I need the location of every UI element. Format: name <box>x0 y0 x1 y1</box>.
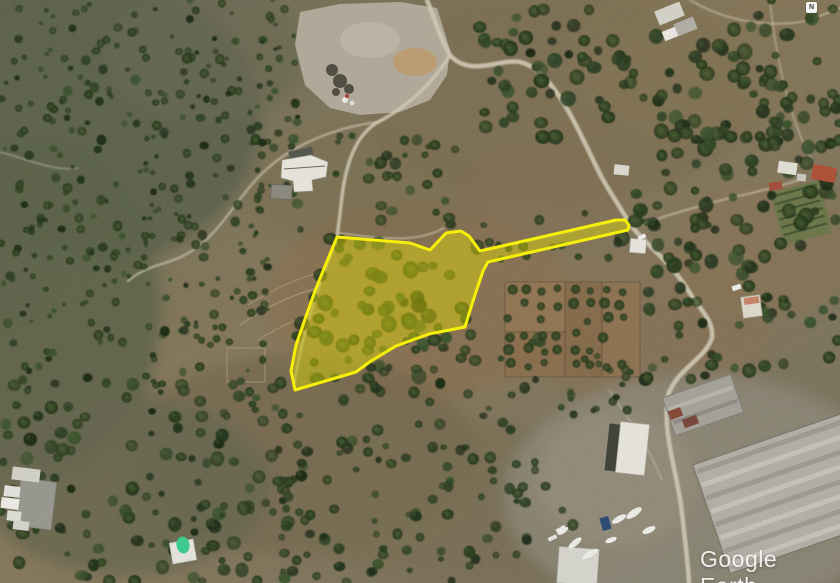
google-earth-watermark: Google Earth <box>700 546 840 583</box>
satellite-imagery <box>0 0 840 583</box>
north-compass-icon[interactable]: N <box>806 2 817 13</box>
satellite-map-viewport[interactable]: N Google Earth <box>0 0 840 583</box>
